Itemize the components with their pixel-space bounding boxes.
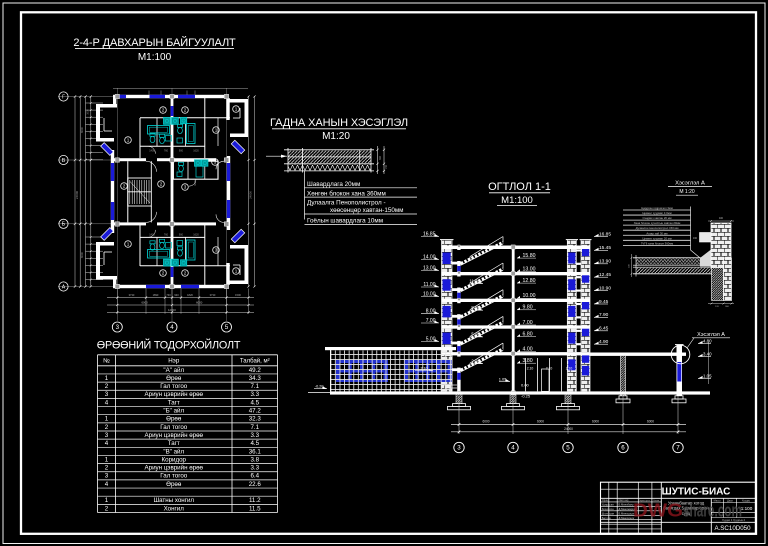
svg-text:24000: 24000 xyxy=(249,191,253,199)
svg-text:6000: 6000 xyxy=(592,420,599,424)
svg-text:Зохиосон: Зохиосон xyxy=(602,507,614,511)
svg-text:4: 4 xyxy=(170,324,174,331)
svg-text:5: 5 xyxy=(566,445,570,452)
svg-text:7: 7 xyxy=(676,445,680,452)
svg-text:2: 2 xyxy=(105,424,109,431)
svg-text:1620: 1620 xyxy=(193,234,199,237)
svg-text:4: 4 xyxy=(105,440,109,447)
svg-text:Удирдсан: Удирдсан xyxy=(602,503,614,507)
svg-text:Өрөө: Өрөө xyxy=(166,416,182,423)
svg-text:Өрөө: Өрөө xyxy=(166,375,182,382)
svg-text:Овог нэр: Овог нэр xyxy=(619,499,630,502)
svg-text:ГАДНА ХАНЫН ХЭСЭГЛЭЛ: ГАДНА ХАНЫН ХЭСЭГЛЭЛ xyxy=(270,117,408,129)
svg-text:DWGshare.com: DWGshare.com xyxy=(633,500,742,521)
svg-text:1400: 1400 xyxy=(149,234,155,237)
svg-text:3730: 3730 xyxy=(129,293,135,297)
svg-text:Талбай, м²: Талбай, м² xyxy=(240,357,270,364)
svg-text:Хуудас: Хуудас xyxy=(742,500,751,503)
svg-text:7.1: 7.1 xyxy=(250,383,259,390)
svg-text:1: 1 xyxy=(105,416,109,423)
svg-text:ӨРӨӨНИЙ ТОДОРХОЙЛОЛТ: ӨРӨӨНИЙ ТОДОРХОЙЛОЛТ xyxy=(97,339,241,352)
svg-text:М1:100: М1:100 xyxy=(501,195,533,206)
svg-text:Орон: Орон xyxy=(602,499,609,502)
svg-text:1400: 1400 xyxy=(149,150,155,153)
svg-text:6000: 6000 xyxy=(537,420,544,424)
svg-text:2-4-Р ДАВХАРЫН БАЙГУУЛАЛТ: 2-4-Р ДАВХАРЫН БАЙГУУЛАЛТ xyxy=(73,36,236,49)
svg-text:24000: 24000 xyxy=(75,190,79,199)
svg-text:34.3: 34.3 xyxy=(249,375,262,382)
svg-text:3730: 3730 xyxy=(210,293,216,297)
svg-text:3.8: 3.8 xyxy=(250,456,259,463)
svg-text:№: № xyxy=(103,357,110,364)
svg-text:Хэсэглэл A: Хэсэглэл A xyxy=(697,332,725,338)
svg-text:2: 2 xyxy=(105,383,109,390)
svg-text:Цардсан гидроизол 3мм: Цардсан гидроизол 3мм xyxy=(641,206,673,210)
svg-text:"В" айл: "В" айл xyxy=(163,448,184,455)
svg-text:24000: 24000 xyxy=(564,427,573,431)
svg-text:Тагт: Тагт xyxy=(168,399,180,406)
svg-text:М1:20: М1:20 xyxy=(322,131,350,142)
svg-text:900: 900 xyxy=(179,150,184,153)
svg-text:2.10: 2.10 xyxy=(546,367,553,371)
svg-text:3: 3 xyxy=(457,445,461,452)
svg-text:2.10: 2.10 xyxy=(527,367,534,371)
svg-text:Хана блокон хучилтын хавтан 20: Хана блокон хучилтын хавтан 20мм xyxy=(634,221,681,225)
svg-text:4.80: 4.80 xyxy=(703,338,712,343)
svg-text:Б: Б xyxy=(62,222,66,228)
svg-text:Дулаалга пенополистрол 150 мм: Дулаалга пенополистрол 150 мм xyxy=(636,226,679,230)
svg-text:А: А xyxy=(62,284,66,290)
svg-text:М1:100: М1:100 xyxy=(138,52,172,63)
svg-text:930: 930 xyxy=(174,293,179,297)
svg-text:5: 5 xyxy=(225,324,229,331)
svg-text:1: 1 xyxy=(105,497,109,504)
svg-text:730: 730 xyxy=(166,293,171,297)
svg-text:Г: Г xyxy=(62,94,65,100)
svg-text:Ариун цэврийн өрөө: Ариун цэврийн өрөө xyxy=(145,391,204,398)
svg-text:Ариун цэврийн өрөө: Ариун цэврийн өрөө xyxy=(145,465,204,472)
svg-text:150: 150 xyxy=(385,164,388,169)
svg-text:Нэр: Нэр xyxy=(168,357,180,364)
svg-text:Хонгил: Хонгил xyxy=(164,505,185,512)
svg-text:хөөсөнцөр хавтан-150мм: хөөсөнцөр хавтан-150мм xyxy=(330,207,403,214)
svg-text:6000: 6000 xyxy=(647,420,654,424)
svg-text:Өрөө: Өрөө xyxy=(166,481,182,488)
svg-text:11.2: 11.2 xyxy=(249,497,261,504)
svg-text:6000: 6000 xyxy=(141,301,148,305)
svg-text:3: 3 xyxy=(105,391,109,398)
svg-text:3.3: 3.3 xyxy=(250,391,259,398)
svg-text:Цемент зуурмаг 20 мм: Цемент зуурмаг 20 мм xyxy=(642,236,671,240)
svg-text:A.SC10D050: A.SC10D050 xyxy=(714,525,751,532)
svg-text:Тагт: Тагт xyxy=(168,440,180,447)
svg-text:6000: 6000 xyxy=(80,127,84,133)
svg-text:760: 760 xyxy=(164,150,169,153)
svg-text:Цемент зуурмаг 4 0мм: Цемент зуурмаг 4 0мм xyxy=(642,211,671,215)
svg-text:1: 1 xyxy=(105,456,109,463)
svg-text:2.10: 2.10 xyxy=(566,367,573,371)
svg-text:760: 760 xyxy=(164,234,169,237)
svg-text:1:100: 1:100 xyxy=(741,506,753,511)
svg-text:1890: 1890 xyxy=(153,293,159,297)
svg-text:ШУТИС-БИАС: ШУТИС-БИАС xyxy=(662,486,731,497)
svg-text:32.3: 32.3 xyxy=(249,416,262,423)
svg-text:360: 360 xyxy=(379,155,382,160)
svg-text:ГVГ6 хана блокон 360мм: ГVГ6 хана блокон 360мм xyxy=(641,241,673,245)
svg-text:Коридор: Коридор xyxy=(162,456,187,463)
svg-text:3000: 3000 xyxy=(87,109,90,115)
svg-text:1: 1 xyxy=(105,375,109,382)
svg-text:400: 400 xyxy=(719,217,724,220)
svg-text:Б.Мөнхбаяр: Б.Мөнхбаяр xyxy=(619,503,634,507)
svg-text:-0.20: -0.20 xyxy=(315,385,324,389)
svg-text:Ариун цэврийн өрөө: Ариун цэврийн өрөө xyxy=(145,432,204,439)
svg-text:В: В xyxy=(62,158,66,164)
svg-text:Шалгасан: Шалгасан xyxy=(602,512,615,516)
svg-text:3: 3 xyxy=(105,432,109,439)
svg-text:2.10: 2.10 xyxy=(421,366,428,370)
svg-text:Хөнгөн блокон хана 360мм: Хөнгөн блокон хана 360мм xyxy=(307,189,386,197)
svg-text:36.1: 36.1 xyxy=(249,448,262,455)
svg-text:"А" айл: "А" айл xyxy=(163,367,184,374)
svg-text:49.2: 49.2 xyxy=(249,367,262,374)
svg-text:Шатны хонгил: Шатны хонгил xyxy=(153,497,194,504)
svg-text:Гал тогоо: Гал тогоо xyxy=(160,473,188,480)
svg-text:6000: 6000 xyxy=(80,252,84,258)
svg-text:1620: 1620 xyxy=(193,150,199,153)
svg-text:Агаар зай 30 мм: Агаар зай 30 мм xyxy=(646,231,667,235)
svg-text:Хэсэглэл А: Хэсэглэл А xyxy=(675,181,705,187)
svg-text:3.3: 3.3 xyxy=(250,465,259,472)
svg-text:22.6: 22.6 xyxy=(249,481,262,488)
svg-text:160: 160 xyxy=(693,237,698,240)
svg-text:1.05: 1.05 xyxy=(703,373,712,378)
svg-text:М 1:20: М 1:20 xyxy=(679,189,695,195)
svg-text:7.1: 7.1 xyxy=(250,424,259,431)
svg-text:4: 4 xyxy=(105,399,109,406)
svg-text:Сэндвич хавтан 20 мм: Сэндвич хавтан 20 мм xyxy=(642,216,671,220)
svg-text:12000: 12000 xyxy=(168,308,176,312)
svg-text:ОГТЛОЛ 1-1: ОГТЛОЛ 1-1 xyxy=(488,181,551,193)
svg-text:6000: 6000 xyxy=(196,301,203,305)
svg-text:Гоёлын шавардлага 10мм: Гоёлын шавардлага 10мм xyxy=(307,218,383,225)
svg-text:2: 2 xyxy=(105,505,109,512)
svg-text:11.5: 11.5 xyxy=(249,505,261,512)
svg-text:3: 3 xyxy=(116,324,120,331)
svg-text:2: 2 xyxy=(105,465,109,472)
svg-text:3.40: 3.40 xyxy=(703,351,712,356)
svg-text:Б.Мөнхцэцэг: Б.Мөнхцэцэг xyxy=(619,512,635,516)
svg-text:Дулаалга Пенополистрол -: Дулаалга Пенополистрол - xyxy=(307,200,386,207)
svg-text:3: 3 xyxy=(105,473,109,480)
svg-text:6: 6 xyxy=(621,445,625,452)
svg-text:1820: 1820 xyxy=(187,293,193,297)
svg-text:Гал тогоо: Гал тогоо xyxy=(160,383,188,390)
svg-text:3.3: 3.3 xyxy=(250,432,259,439)
svg-text:47.2: 47.2 xyxy=(249,408,262,415)
svg-text:Шавардлага 20мм: Шавардлага 20мм xyxy=(307,181,360,188)
svg-text:Батлав: Батлав xyxy=(602,516,611,520)
svg-text:6.4: 6.4 xyxy=(250,473,259,480)
svg-text:1800: 1800 xyxy=(194,180,197,186)
svg-text:4.5: 4.5 xyxy=(250,399,259,406)
svg-text:4: 4 xyxy=(511,445,515,452)
svg-text:1500: 1500 xyxy=(235,293,241,297)
svg-text:"Б" айл: "Б" айл xyxy=(163,408,184,415)
svg-text:4: 4 xyxy=(105,481,109,488)
svg-text:4.5: 4.5 xyxy=(250,440,259,447)
svg-text:Гал тогоо: Гал тогоо xyxy=(160,424,188,431)
svg-text:6000: 6000 xyxy=(482,420,489,424)
svg-text:900: 900 xyxy=(179,234,184,237)
